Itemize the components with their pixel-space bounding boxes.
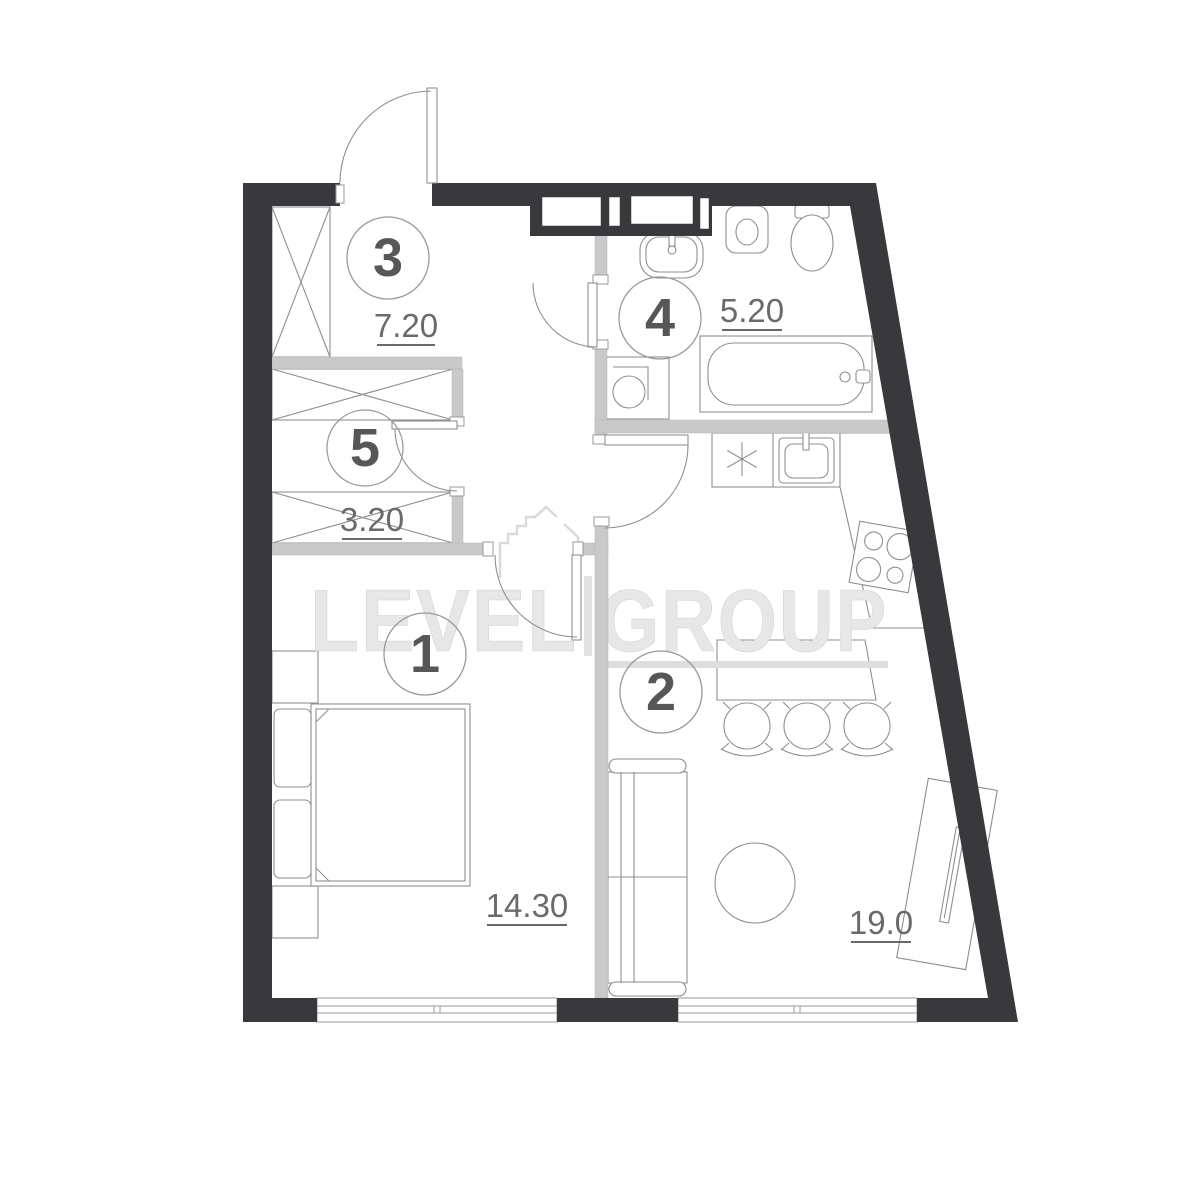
room-number-bathroom: 4 — [645, 288, 675, 348]
area-label-bathroom: 5.20 — [720, 292, 784, 329]
kitchen-counter — [712, 428, 840, 487]
room-number-living-kitchen: 2 — [646, 662, 676, 722]
door-leaf — [392, 421, 457, 429]
kitchen-door — [605, 435, 688, 528]
nightstand-bottom — [272, 886, 318, 938]
partition-bedroom-north — [272, 543, 492, 555]
coffee-table — [715, 843, 795, 923]
door-swing-arc — [395, 429, 457, 491]
door-leaf — [572, 555, 581, 640]
door-leaf — [605, 435, 688, 445]
watermark-underline — [598, 661, 888, 668]
bidet — [726, 206, 768, 253]
partition-bathroom-south — [595, 420, 891, 433]
partition-hall-closet — [272, 357, 462, 369]
mullion — [794, 1006, 800, 1013]
mullion — [434, 1006, 440, 1013]
pillow — [274, 709, 311, 787]
bathroom-door — [533, 283, 597, 347]
area-label-wardrobe: 3.20 — [340, 501, 404, 538]
closet-cabinet-upper — [272, 369, 453, 420]
sofa — [608, 759, 687, 996]
sofa-armrest — [609, 982, 686, 996]
area-label-living-kitchen: 19.0 — [849, 904, 913, 941]
wall-bottom-left — [243, 998, 317, 1022]
watermark-divider — [584, 576, 592, 656]
shaft-box — [541, 196, 602, 227]
watermark-text-level: LEVEL — [310, 571, 578, 670]
door-leaf — [588, 283, 597, 347]
window-bedroom — [317, 998, 557, 1022]
room-number-hallway: 3 — [373, 228, 403, 288]
door-swing-arc — [533, 283, 597, 347]
room-badge-wardrobe: 5 — [327, 410, 403, 486]
jamb — [336, 185, 344, 203]
shaft-box — [630, 195, 694, 225]
room-number-wardrobe: 5 — [350, 418, 380, 478]
chair — [781, 702, 833, 756]
area-label-hallway: 7.20 — [374, 307, 438, 344]
floor-plan: LEVEL GROUP — [0, 0, 1200, 1199]
shaft-box — [699, 197, 710, 230]
house-logo-icon — [500, 507, 578, 578]
room-number-bedroom: 1 — [410, 624, 440, 684]
area-label-bedroom: 14.30 — [486, 887, 569, 924]
sofa-armrest — [609, 759, 686, 773]
bathtub — [700, 336, 872, 412]
chair — [721, 702, 773, 756]
room-badge-bathroom: 4 — [619, 277, 701, 359]
shaft-box — [608, 196, 621, 227]
window-living — [678, 998, 917, 1022]
bath-faucet-icon — [856, 370, 870, 383]
chair — [841, 702, 893, 756]
entry-door — [340, 88, 437, 183]
room-badge-hallway: 3 — [347, 217, 429, 299]
floor-plan-page: LEVEL GROUP — [0, 0, 1200, 1199]
jamb — [483, 542, 493, 556]
door-swing-arc — [605, 445, 688, 528]
partition-closet-east-lower — [452, 490, 463, 543]
room-badge-living-kitchen: 2 — [620, 651, 702, 733]
jamb — [594, 517, 609, 526]
hallway-wardrobe — [272, 207, 330, 357]
partition-bedroom-living — [595, 525, 608, 998]
wall-left — [243, 183, 272, 1022]
toilet — [791, 205, 833, 271]
washing-machine — [606, 357, 669, 419]
pillow — [274, 800, 311, 878]
bed — [274, 704, 470, 886]
door-leaf — [427, 88, 437, 183]
door-swing-arc — [340, 91, 431, 183]
wall-bottom-middle — [557, 998, 678, 1022]
wall-top-left — [243, 183, 340, 206]
jamb — [573, 542, 583, 556]
